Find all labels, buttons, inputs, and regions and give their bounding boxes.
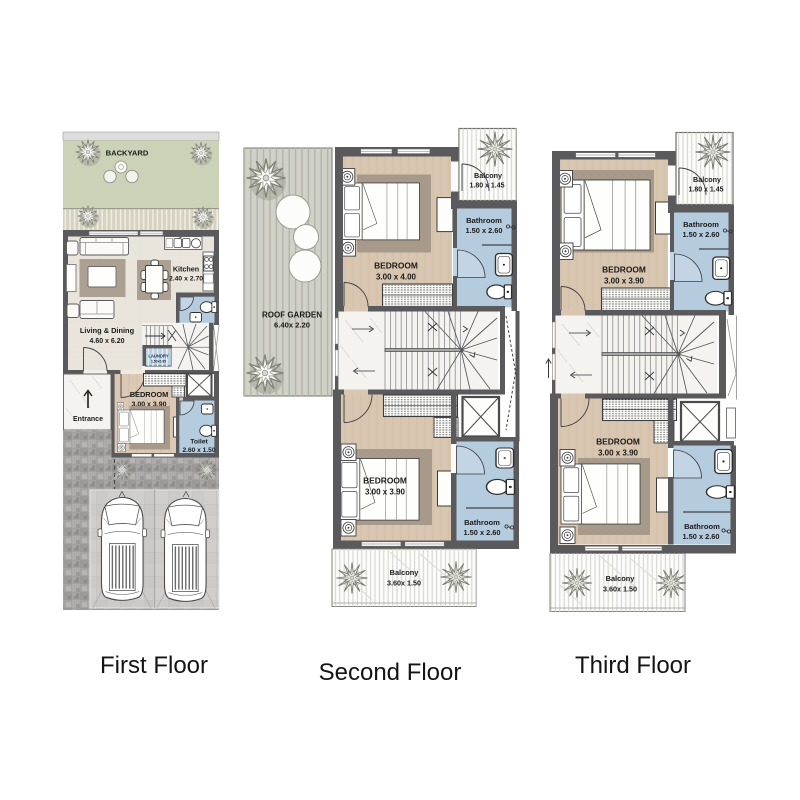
svg-text:2.40 x 2.70: 2.40 x 2.70	[169, 276, 203, 283]
svg-text:LAUNDRY: LAUNDRY	[148, 354, 169, 359]
svg-text:Bathroom: Bathroom	[464, 518, 500, 527]
svg-text:1.50 x 2.60: 1.50 x 2.60	[683, 532, 720, 541]
svg-text:BEDROOM: BEDROOM	[596, 437, 640, 447]
svg-text:Balcony: Balcony	[693, 175, 721, 184]
svg-text:Third Floor: Third Floor	[575, 652, 691, 679]
svg-text:Toilet: Toilet	[190, 439, 208, 446]
svg-text:Balcony: Balcony	[606, 574, 636, 583]
svg-text:1.50x0.95: 1.50x0.95	[151, 360, 166, 364]
svg-text:1.80 x 1.45: 1.80 x 1.45	[688, 187, 723, 194]
svg-text:3.60x 1.50: 3.60x 1.50	[603, 585, 637, 594]
svg-text:3.00 x 4.00: 3.00 x 4.00	[376, 273, 417, 282]
svg-text:Entrance: Entrance	[73, 416, 103, 423]
svg-text:Kitchen: Kitchen	[173, 265, 199, 274]
svg-text:Living & Dining: Living & Dining	[80, 326, 135, 335]
svg-text:First Floor: First Floor	[100, 652, 208, 679]
svg-text:Second Floor: Second Floor	[319, 659, 462, 686]
svg-text:3.00 x 3.90: 3.00 x 3.90	[598, 449, 639, 458]
svg-text:BEDROOM: BEDROOM	[130, 390, 169, 399]
svg-text:BEDROOM: BEDROOM	[374, 261, 418, 271]
svg-text:Bathroom: Bathroom	[683, 220, 719, 229]
svg-text:1.80 x 1.45: 1.80 x 1.45	[469, 183, 504, 190]
svg-text:BEDROOM: BEDROOM	[363, 476, 407, 486]
svg-text:1.50 x 2.60: 1.50 x 2.60	[464, 528, 501, 537]
svg-text:1.50 x 2.60: 1.50 x 2.60	[683, 230, 720, 239]
svg-text:BACKYARD: BACKYARD	[106, 149, 149, 158]
svg-text:3.00 x 3.90: 3.00 x 3.90	[604, 277, 645, 286]
svg-text:2.60 x 1.50: 2.60 x 1.50	[183, 447, 216, 454]
svg-text:Balcony: Balcony	[474, 171, 502, 180]
svg-text:Bathroom: Bathroom	[466, 216, 502, 225]
svg-text:3.00 x 3.90: 3.00 x 3.90	[365, 488, 406, 497]
svg-text:BEDROOM: BEDROOM	[602, 265, 646, 275]
svg-text:6.40x 2.20: 6.40x 2.20	[274, 321, 310, 330]
svg-text:ROOF GARDEN: ROOF GARDEN	[262, 311, 322, 320]
svg-text:Balcony: Balcony	[390, 568, 420, 577]
svg-text:4.60 x 6.20: 4.60 x 6.20	[89, 338, 124, 345]
svg-text:1.50 x 2.60: 1.50 x 2.60	[466, 226, 503, 235]
svg-text:Bathroom: Bathroom	[684, 522, 720, 531]
svg-text:3.60x 1.50: 3.60x 1.50	[387, 579, 421, 588]
